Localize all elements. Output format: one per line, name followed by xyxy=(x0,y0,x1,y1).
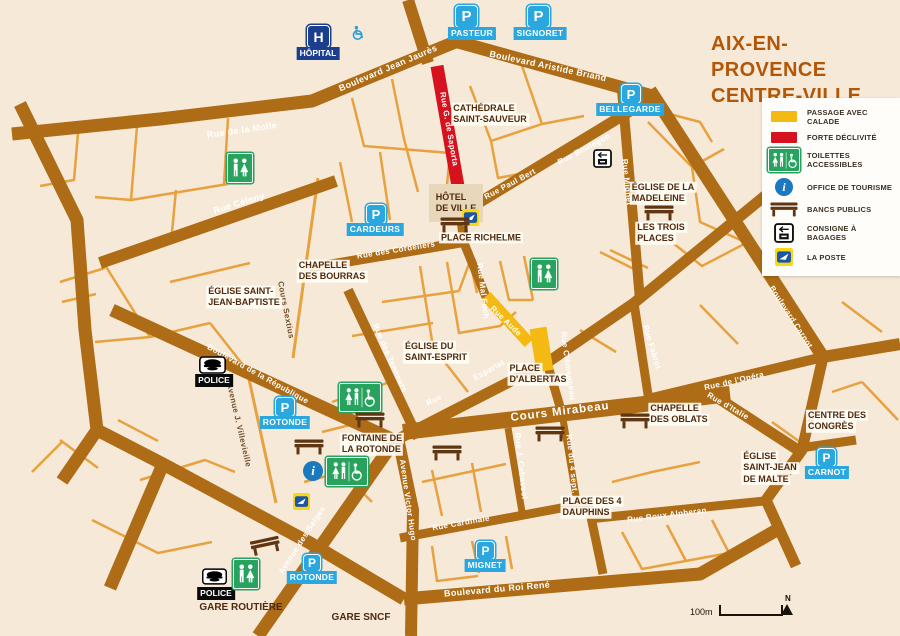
accessible-toilets-icon-legend xyxy=(768,148,800,172)
bench-icon-trois-places xyxy=(644,205,674,226)
legend-item-forte-declivite: FORTE DÉCLIVITÉ xyxy=(768,132,894,143)
la-poste-icon-legend xyxy=(768,248,800,266)
parking-label-rotonde-sud: ROTONDE xyxy=(287,571,337,584)
parking-icon-rotonde-sud: P xyxy=(303,554,321,572)
place-label-gare-sncf: GARE SNCF xyxy=(330,612,393,625)
parking-icon-mignet: P xyxy=(476,541,495,560)
place-label-dauphins: PLACE DES 4DAUPHINS xyxy=(560,496,623,519)
parking-icon-bellegarde: P xyxy=(621,84,641,104)
place-label-albertas: PLACED'ALBERTAS xyxy=(508,363,569,386)
scale-distance-label: 100m xyxy=(690,607,713,617)
parking-icon-rotonde-nord: P xyxy=(275,397,295,417)
legend-item-bancs-publics: BANCS PUBLICS xyxy=(768,202,894,217)
scale-bar xyxy=(719,605,783,616)
accessible-toilets-icon-rotonde-nord xyxy=(339,383,381,412)
legend-item-passage-calade: PASSAGE AVEC CALADE xyxy=(768,108,894,126)
accessible-icon xyxy=(349,25,365,46)
place-label-madeleine: ÉGLISE DE LAMADELEINE xyxy=(630,182,697,205)
parking-label-mignet: MIGNET xyxy=(465,559,506,572)
place-label-malte: ÉGLISESAINT-JEANDE MALTE xyxy=(741,451,799,485)
place-label-fontaine-rotonde: FONTAINE DELA ROTONDE xyxy=(340,433,404,456)
parking-label-bellegarde: BELLEGARDE xyxy=(596,103,664,116)
police-label-sud: POLICE xyxy=(197,587,235,600)
legend-item-consigne: CONSIGNE À BAGAGES xyxy=(768,223,894,243)
parking-label-signoret: SIGNORET xyxy=(514,27,567,40)
bench-icon-rotonde-ouest xyxy=(294,439,324,460)
la-poste-icon-belges xyxy=(293,493,310,515)
bench-icon-rotonde-nord xyxy=(355,412,385,433)
parking-icon-pasteur: P xyxy=(455,5,478,28)
parking-label-rotonde-nord: ROTONDE xyxy=(260,416,310,429)
accessible-toilets-icon-rotonde-sud xyxy=(326,457,368,486)
parking-icon-carnot: P xyxy=(817,448,836,467)
bench-icon-mirabeau-centre xyxy=(535,426,565,447)
parking-label-carnot: CARNOT xyxy=(805,466,849,479)
bench-icon-legend xyxy=(768,202,800,217)
place-label-cathedrale: CATHÉDRALESAINT-SAUVEUR xyxy=(451,103,529,126)
legend-item-toilettes: TOILETTES ACCESSIBLES xyxy=(768,148,894,172)
place-label-saint-jean-baptiste: ÉGLISE SAINT-JEAN-BAPTISTE xyxy=(206,286,282,309)
toilets-icon-molle xyxy=(227,153,253,183)
toilets-icon-foch xyxy=(531,259,557,289)
tourist-office-icon-legend: i xyxy=(768,178,800,196)
north-arrow-icon xyxy=(781,604,793,615)
tourist-office-icon: i xyxy=(303,461,323,481)
luggage-locker-icon-legend xyxy=(768,223,800,243)
legend-item-office-tourisme: i OFFICE DE TOURISME xyxy=(768,178,894,196)
bench-icon-mirabeau-ouest xyxy=(432,445,462,466)
parking-icon-cardeurs: P xyxy=(366,204,386,224)
hospital-icon: H xyxy=(307,25,330,48)
legend-item-la-poste: LA POSTE xyxy=(768,248,894,266)
city-map-aix-en-provence: Rue de la Molle Boulevard Jean Jaurès Bo… xyxy=(0,0,900,636)
police-label-nord: POLICE xyxy=(195,374,233,387)
calade-swatch xyxy=(768,111,800,122)
place-label-congres: CENTRE DESCONGRÈS xyxy=(806,410,868,433)
legend-panel: PASSAGE AVEC CALADE FORTE DÉCLIVITÉ TOIL… xyxy=(762,98,900,276)
parking-icon-signoret: P xyxy=(527,5,550,28)
parking-label-pasteur: PASTEUR xyxy=(448,27,496,40)
map-title-line1: AIX-EN-PROVENCE xyxy=(711,31,900,83)
bench-icon-oblats xyxy=(620,413,650,434)
toilets-icon-gare-routiere xyxy=(233,559,259,589)
place-label-bourras: CHAPELLEDES BOURRAS xyxy=(297,260,368,283)
parking-label-cardeurs: CARDEURS xyxy=(347,223,404,236)
place-label-oblats: CHAPELLEDES OBLATS xyxy=(648,403,709,426)
north-label: N xyxy=(785,594,791,603)
place-label-saint-esprit: ÉGLISE DUSAINT-ESPRIT xyxy=(403,341,469,364)
declivite-swatch xyxy=(768,132,800,143)
bench-icon-richelme xyxy=(440,217,470,238)
hospital-label: HÔPITAL xyxy=(297,47,340,60)
place-label-gare-routiere: GARE ROUTIÈRE xyxy=(197,602,284,615)
luggage-locker-icon-boulegon xyxy=(593,149,612,173)
